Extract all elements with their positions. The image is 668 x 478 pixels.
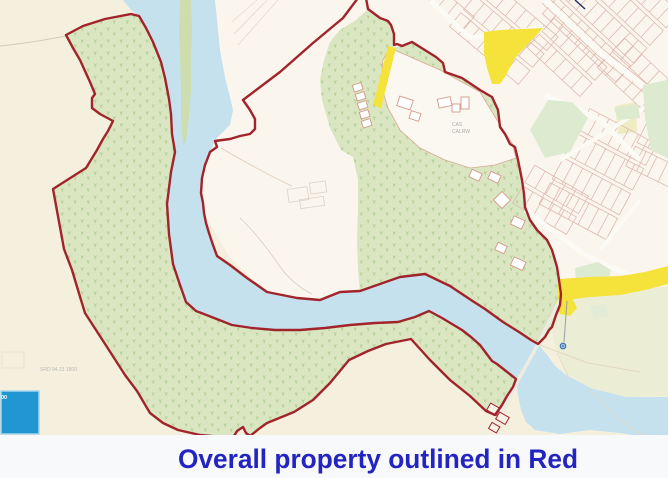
svg-text:00: 00: [1, 395, 7, 401]
svg-text:SRD 94 23 1800: SRD 94 23 1800: [40, 367, 77, 373]
svg-text:Overall property outlined in R: Overall property outlined in Red: [178, 444, 578, 474]
svg-text:CALRW: CALRW: [452, 129, 470, 135]
svg-text:CAS: CAS: [452, 122, 463, 128]
